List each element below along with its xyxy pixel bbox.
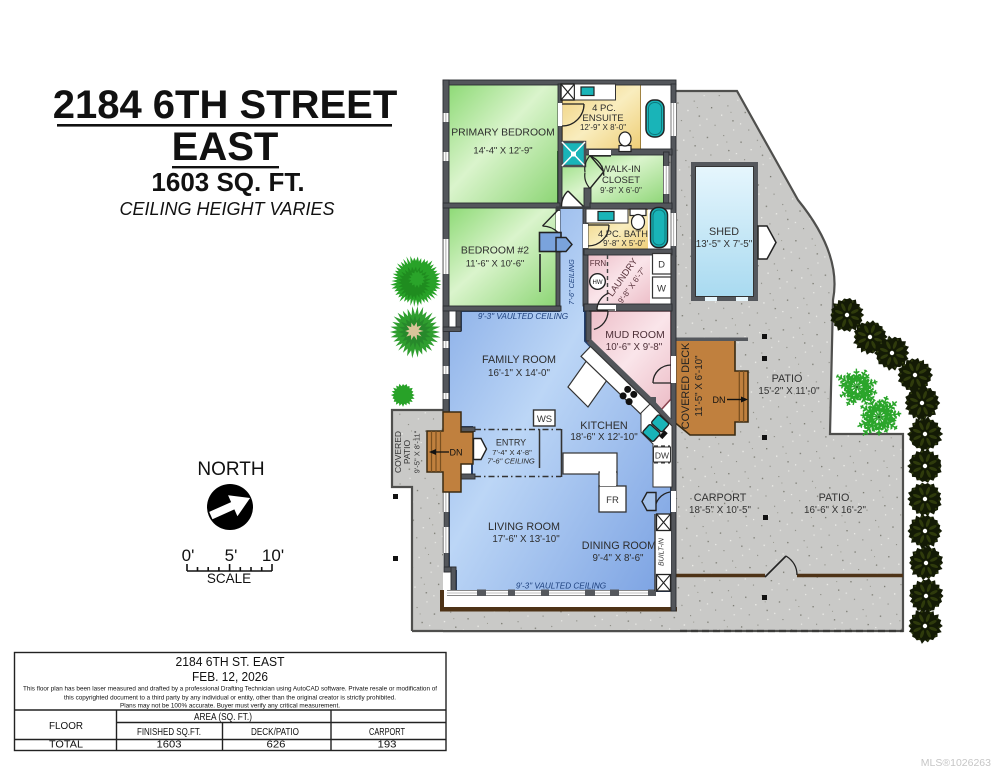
svg-text:18'-6" X 12'-10": 18'-6" X 12'-10" (570, 432, 638, 443)
svg-text:MUD ROOM: MUD ROOM (605, 329, 665, 341)
svg-text:DW: DW (655, 451, 669, 461)
svg-text:13'-5" X 7'-5": 13'-5" X 7'-5" (696, 239, 753, 250)
svg-text:PRIMARY BEDROOM: PRIMARY BEDROOM (451, 128, 555, 139)
svg-text:DINING ROOM: DINING ROOM (582, 540, 656, 552)
svg-text:9'-4" X 8'-6": 9'-4" X 8'-6" (593, 553, 645, 564)
svg-text:this copyrighted document to a: this copyrighted document to a third par… (64, 695, 396, 702)
svg-text:193: 193 (378, 739, 397, 751)
svg-text:9'-3" VAULTED CEILING: 9'-3" VAULTED CEILING (478, 312, 569, 321)
svg-text:SHED: SHED (709, 226, 739, 238)
svg-text:16'-1" X 14'-0": 16'-1" X 14'-0" (488, 368, 550, 379)
svg-text:2184 6TH STREET: 2184 6TH STREET (53, 83, 398, 127)
svg-text:2184 6TH ST. EAST: 2184 6TH ST. EAST (176, 654, 285, 669)
svg-text:CARPORT: CARPORT (694, 492, 747, 504)
svg-text:PATIO: PATIO (402, 439, 412, 464)
svg-text:9'-5" X 8'-11": 9'-5" X 8'-11" (413, 430, 422, 473)
svg-text:FLOOR: FLOOR (49, 720, 83, 732)
svg-text:WS: WS (537, 414, 552, 425)
svg-text:1603: 1603 (157, 739, 182, 751)
svg-text:WALK-IN: WALK-IN (601, 164, 640, 175)
svg-text:FR: FR (606, 495, 619, 506)
svg-text:FINISHED SQ.FT.: FINISHED SQ.FT. (137, 726, 201, 738)
svg-text:18'-5" X 10'-5": 18'-5" X 10'-5" (689, 505, 751, 516)
svg-text:Plans may not be 100% accurate: Plans may not be 100% accurate. Buyer mu… (120, 703, 340, 710)
svg-text:BUILT-IN: BUILT-IN (659, 537, 666, 566)
svg-text:W: W (657, 284, 666, 295)
svg-text:HW: HW (593, 280, 603, 286)
svg-text:TOTAL: TOTAL (49, 739, 83, 751)
svg-text:7'-6" CEILING: 7'-6" CEILING (567, 259, 576, 305)
svg-text:LIVING ROOM: LIVING ROOM (488, 521, 560, 533)
svg-text:ENTRY: ENTRY (496, 438, 526, 448)
svg-text:5': 5' (225, 546, 238, 565)
svg-text:DN: DN (713, 395, 726, 405)
svg-text:BEDROOM #2: BEDROOM #2 (461, 246, 529, 257)
svg-text:9'-3" VAULTED CEILING: 9'-3" VAULTED CEILING (516, 582, 607, 591)
svg-text:CARPORT: CARPORT (369, 726, 405, 738)
svg-text:SCALE: SCALE (207, 571, 251, 586)
svg-text:11'-5" X 6'-10": 11'-5" X 6'-10" (694, 355, 705, 417)
svg-text:MLS®1026263: MLS®1026263 (921, 757, 991, 768)
svg-text:14'-4" X 12'-9": 14'-4" X 12'-9" (473, 145, 532, 156)
svg-text:D: D (658, 260, 665, 271)
svg-text:0': 0' (182, 546, 195, 565)
svg-text:17'-6" X 13'-10": 17'-6" X 13'-10" (492, 534, 560, 545)
svg-text:11'-6" X 10'-6": 11'-6" X 10'-6" (466, 258, 525, 269)
svg-text:COVERED DECK: COVERED DECK (680, 342, 692, 429)
svg-text:AREA (SQ. FT.): AREA (SQ. FT.) (194, 711, 252, 723)
svg-text:15'-2" X 11'-0": 15'-2" X 11'-0" (758, 386, 820, 397)
svg-text:KITCHEN: KITCHEN (580, 420, 627, 432)
svg-text:PATIO: PATIO (772, 373, 803, 385)
svg-text:1603 SQ. FT.: 1603 SQ. FT. (151, 167, 304, 197)
svg-text:626: 626 (267, 739, 286, 751)
svg-text:4 PC. BATH: 4 PC. BATH (598, 229, 648, 239)
svg-text:7'-6" CEILING: 7'-6" CEILING (487, 457, 535, 466)
svg-text:9'-8" X 5'-0": 9'-8" X 5'-0" (603, 239, 645, 248)
svg-text:FEB. 12, 2026: FEB. 12, 2026 (192, 669, 268, 684)
svg-text:NORTH: NORTH (197, 459, 264, 480)
svg-text:DN: DN (450, 448, 463, 458)
svg-text:PATIO: PATIO (819, 492, 850, 504)
svg-text:CLOSET: CLOSET (602, 175, 640, 186)
svg-text:10': 10' (262, 546, 284, 565)
svg-text:EAST: EAST (172, 125, 279, 169)
svg-text:This floor plan has been laser: This floor plan has been laser measured … (23, 686, 437, 693)
svg-text:DECK/PATIO: DECK/PATIO (251, 726, 299, 738)
svg-text:CEILING HEIGHT VARIES: CEILING HEIGHT VARIES (119, 199, 334, 219)
svg-text:FAMILY ROOM: FAMILY ROOM (482, 354, 556, 366)
svg-text:10'-6" X 9'-8": 10'-6" X 9'-8" (606, 342, 663, 353)
svg-text:9'-8" X 6'-0": 9'-8" X 6'-0" (600, 186, 642, 195)
svg-text:12'-9" X 8'-0": 12'-9" X 8'-0" (580, 123, 626, 132)
svg-text:FRN: FRN (590, 259, 607, 268)
svg-text:16'-6" X 16'-2": 16'-6" X 16'-2" (804, 505, 866, 516)
